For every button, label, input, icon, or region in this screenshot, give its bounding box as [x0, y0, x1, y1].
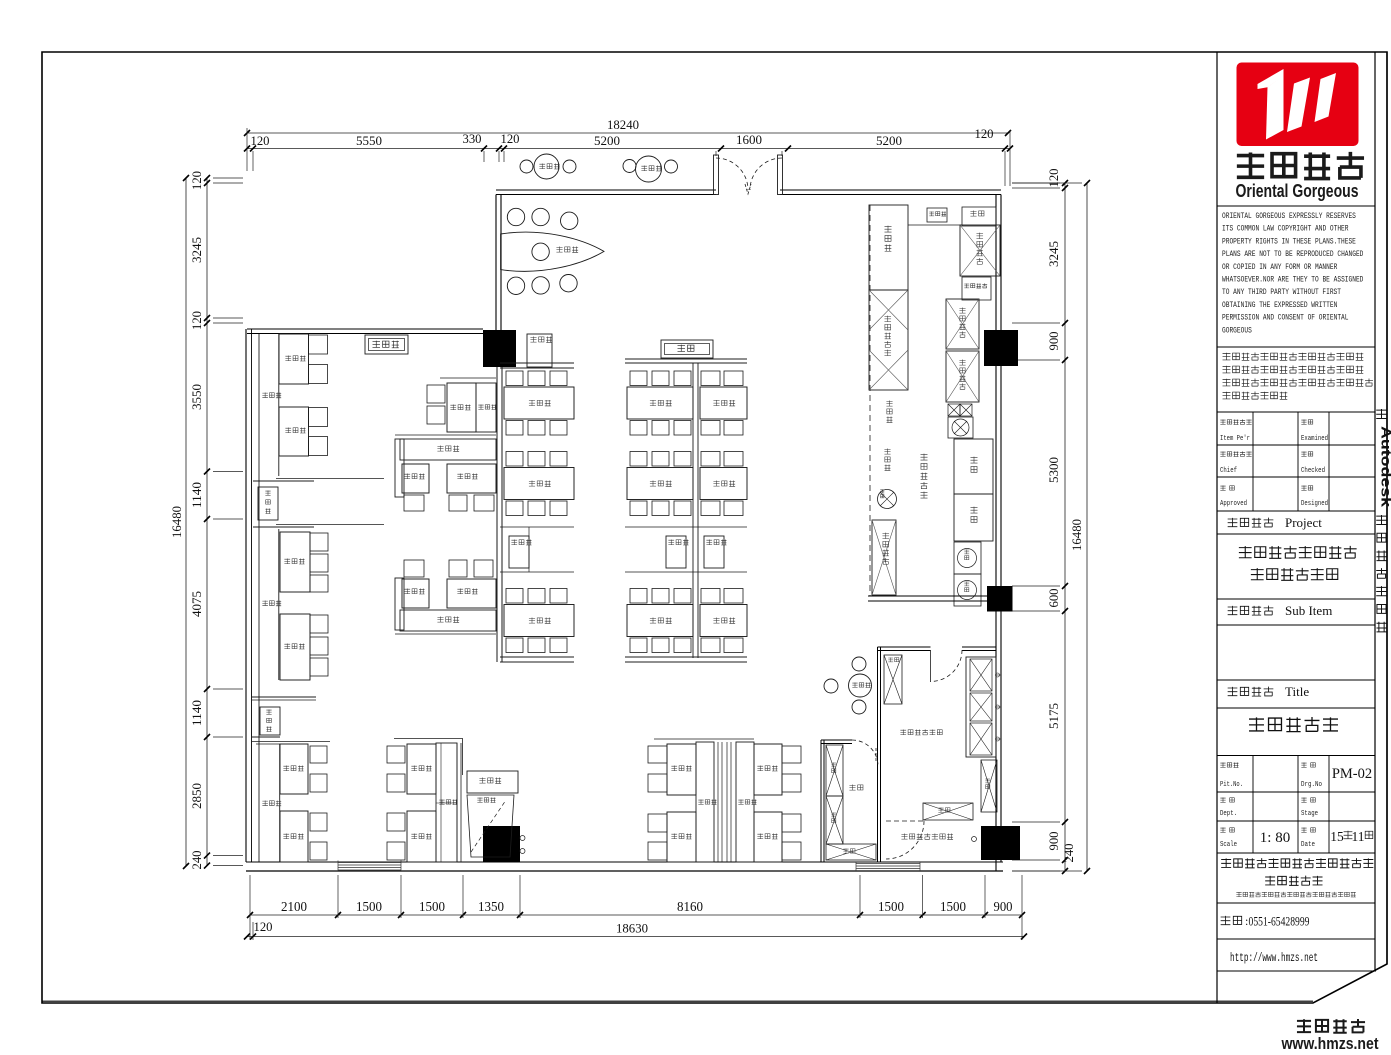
svg-text:18630: 18630: [616, 921, 648, 936]
svg-text:Sub Item: Sub Item: [1285, 603, 1332, 618]
svg-text:Autodesk: Autodesk: [1379, 426, 1391, 507]
svg-text:1: 80: 1: 80: [1260, 830, 1290, 846]
svg-text:ITS COMMON LAW COPYRIGHT AND O: ITS COMMON LAW COPYRIGHT AND OTHER: [1222, 224, 1349, 234]
svg-text:Examined: Examined: [1301, 435, 1328, 443]
svg-text:Oriental Gorgeous: Oriental Gorgeous: [1236, 181, 1359, 201]
svg-text:16480: 16480: [1069, 519, 1084, 551]
svg-text:5300: 5300: [1047, 457, 1061, 483]
svg-text:4075: 4075: [190, 591, 204, 617]
svg-text:1500: 1500: [878, 899, 904, 914]
svg-text:120: 120: [190, 171, 204, 190]
svg-text:Stage: Stage: [1301, 810, 1318, 818]
svg-text:2850: 2850: [190, 783, 204, 809]
svg-text:120: 120: [975, 127, 994, 141]
svg-text:1500: 1500: [419, 899, 445, 914]
svg-text:PM-02: PM-02: [1332, 766, 1372, 782]
svg-text:1140: 1140: [190, 482, 204, 508]
svg-text:900: 900: [1047, 332, 1061, 351]
svg-text:120: 120: [501, 132, 520, 146]
svg-text:Designed: Designed: [1301, 500, 1328, 508]
svg-text:240: 240: [1062, 844, 1076, 863]
svg-text:1350: 1350: [478, 899, 504, 914]
svg-text:120: 120: [1047, 169, 1061, 188]
svg-text:PLANS ARE NOT TO BE REPRODUCED: PLANS ARE NOT TO BE REPRODUCED CHANGED: [1222, 249, 1363, 259]
svg-text:Project: Project: [1285, 515, 1322, 530]
svg-text:2100: 2100: [281, 899, 307, 914]
svg-text:240: 240: [190, 851, 204, 870]
svg-text:900: 900: [1047, 832, 1061, 851]
svg-text:900: 900: [994, 899, 1013, 914]
svg-text:120: 120: [251, 134, 270, 148]
svg-text:Checked: Checked: [1301, 467, 1325, 475]
svg-text:OBTAINING THE EXPRESSED WRITTE: OBTAINING THE EXPRESSED WRITTEN: [1222, 300, 1337, 310]
svg-text:Pit.No.: Pit.No.: [1220, 781, 1243, 789]
svg-text:15: 15: [1330, 829, 1344, 844]
svg-text:1600: 1600: [736, 132, 762, 147]
svg-text:Title: Title: [1285, 684, 1309, 699]
svg-text:Item Pe'r: Item Pe'r: [1220, 435, 1250, 443]
svg-text:3245: 3245: [1047, 241, 1061, 267]
svg-text:www.hmzs.net: www.hmzs.net: [1281, 1034, 1379, 1053]
svg-text:8160: 8160: [677, 899, 703, 914]
svg-text:16480: 16480: [169, 506, 184, 538]
svg-text:5550: 5550: [356, 133, 382, 148]
svg-text:18240: 18240: [607, 117, 639, 132]
svg-text:120: 120: [190, 311, 204, 330]
svg-text:1140: 1140: [190, 700, 204, 726]
svg-text:http://www.hmzs.net: http://www.hmzs.net: [1230, 952, 1318, 965]
svg-text:5200: 5200: [876, 133, 902, 148]
svg-text:Dept.: Dept.: [1220, 810, 1237, 818]
svg-text:GORGEOUS: GORGEOUS: [1222, 325, 1252, 335]
svg-text:330: 330: [463, 132, 482, 146]
svg-text:Approved: Approved: [1220, 500, 1247, 508]
svg-text:600: 600: [1047, 589, 1061, 608]
svg-text:1500: 1500: [356, 899, 382, 914]
svg-text:5175: 5175: [1047, 703, 1061, 729]
svg-text:PERMISSION AND CONSENT OF ORIE: PERMISSION AND CONSENT OF ORIENTAL: [1222, 313, 1349, 323]
svg-text:5200: 5200: [594, 133, 620, 148]
svg-text:PROPERTY RIGHTS IN THESE PLANS: PROPERTY RIGHTS IN THESE PLANS.THESE: [1222, 236, 1356, 246]
svg-text:TO ANY THIRD PARTY WITHOUT FIR: TO ANY THIRD PARTY WITHOUT FIRST: [1222, 287, 1341, 297]
svg-text:WHATSOEVER.NOR ARE THEY TO BE: WHATSOEVER.NOR ARE THEY TO BE ASSIGNED: [1222, 275, 1363, 285]
svg-text:0551-65428999: 0551-65428999: [1249, 915, 1310, 929]
svg-text:11: 11: [1352, 829, 1365, 844]
svg-text:1500: 1500: [940, 899, 966, 914]
svg-text:Date: Date: [1301, 841, 1315, 849]
svg-text:120: 120: [254, 920, 273, 934]
svg-text:Scale: Scale: [1220, 841, 1237, 849]
svg-text:Drg.No: Drg.No: [1301, 781, 1322, 789]
svg-text:ORIENTAL GORGEOUS EXPRESSLY RE: ORIENTAL GORGEOUS EXPRESSLY RESERVES: [1222, 211, 1356, 221]
svg-text:3550: 3550: [190, 384, 204, 410]
svg-text:3245: 3245: [190, 237, 204, 263]
svg-text:OR COPIED IN ANY FORM OR MANNE: OR COPIED IN ANY FORM OR MANNER: [1222, 262, 1337, 272]
svg-text:Chief: Chief: [1220, 467, 1237, 475]
